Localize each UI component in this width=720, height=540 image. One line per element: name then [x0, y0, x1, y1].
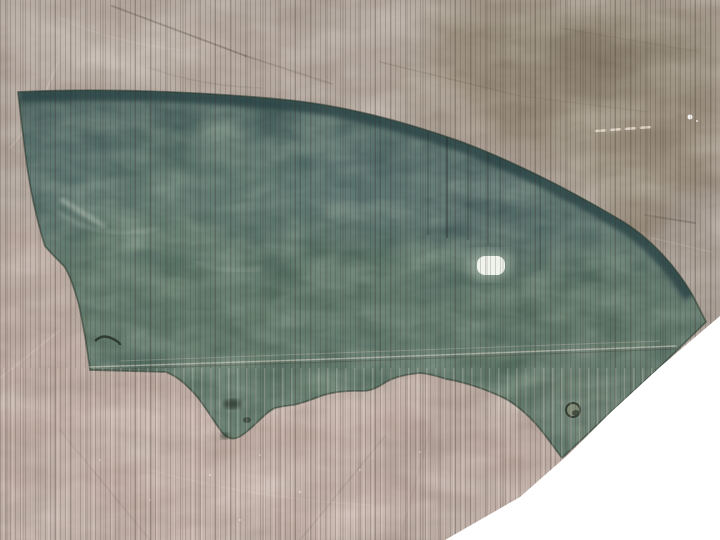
tarp-photo [0, 0, 720, 540]
photo-frame [0, 0, 720, 540]
